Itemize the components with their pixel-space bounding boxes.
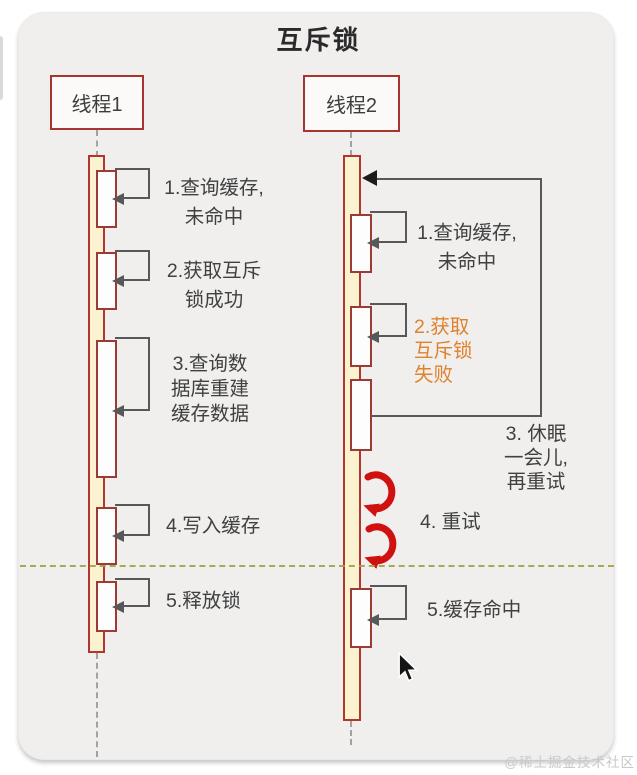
timeline-divider-line <box>20 565 614 567</box>
thread1-name: 线程1 <box>71 88 122 117</box>
thread2-step2-self-message-arrow <box>370 303 407 337</box>
retry-arrow-icon <box>359 520 403 570</box>
thread2-step5-self-message-arrow <box>370 585 407 620</box>
thread2-step5-label: 5.缓存命中 <box>427 596 521 625</box>
thread2-lifeline-top <box>350 132 352 156</box>
mouse-cursor-icon <box>396 652 420 684</box>
thread1-step1-self-message-arrow <box>115 168 150 199</box>
thread2-step3-activation-box <box>350 379 372 451</box>
thread1-step2-label: 2.获取互斥 锁成功 <box>157 257 271 315</box>
thread2-step3-label: 3. 休眠 一会儿, 再重试 <box>492 422 580 494</box>
thread2-name: 线程2 <box>326 89 377 118</box>
watermark: @稀土掘金技术社区 <box>504 751 635 771</box>
thread1-actor-box: 线程1 <box>50 75 144 130</box>
thread2-actor-box: 线程2 <box>303 75 400 132</box>
thread1-step1-label: 1.查询缓存, 未命中 <box>157 174 271 232</box>
thread1-lifeline-bottom <box>96 653 98 757</box>
page-title: 互斥锁 <box>0 20 637 57</box>
thread2-step1-self-message-arrow <box>370 211 407 243</box>
thread1-step4-label: 4.写入缓存 <box>166 512 260 541</box>
thread1-lifeline-top <box>96 130 98 157</box>
thread2-lifeline-bottom <box>350 721 352 745</box>
thread2-step4-label: 4. 重试 <box>420 508 481 537</box>
thread1-step4-self-message-arrow <box>115 504 150 536</box>
thread1-step5-label: 5.释放锁 <box>166 587 241 616</box>
thread1-step3-label: 3.查询数 据库重建 缓存数据 <box>160 352 260 427</box>
thread1-step5-self-message-arrow <box>115 578 150 607</box>
thread1-step3-self-message-arrow <box>115 337 150 411</box>
retry-arrow-icon <box>358 468 402 518</box>
thread2-step1-label: 1.查询缓存, 未命中 <box>408 219 526 277</box>
thread2-step2-label: 2.获取 互斥锁 失败 <box>414 315 494 387</box>
thread1-step2-self-message-arrow <box>115 250 150 281</box>
